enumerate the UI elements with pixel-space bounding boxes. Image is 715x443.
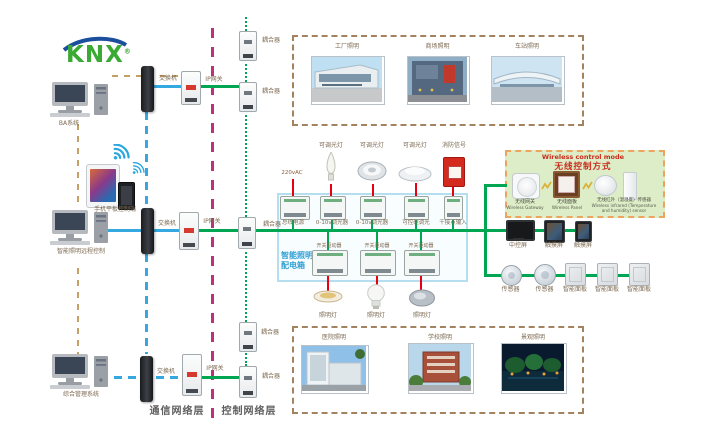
touch-screen-1-label: 触摸屏 xyxy=(540,243,568,250)
dry-contact-label: 干接点输入 xyxy=(436,220,470,226)
coupler-bus-seg1 xyxy=(245,17,247,31)
knx-logo-text: KNX® xyxy=(66,42,132,68)
wireless-panel-label: 无线面板 Wireless Panel xyxy=(547,199,587,210)
coupler-5 xyxy=(239,366,257,398)
distribution-box-title-line1: 智能照明 xyxy=(281,251,313,260)
wireless-title-zh: 无线控制方式 xyxy=(505,160,661,172)
sensor-2-label: 传感器 xyxy=(531,287,558,294)
tablet-icon xyxy=(86,164,120,208)
knx-trunk-vertical xyxy=(484,184,487,277)
mobile-tablet-group xyxy=(78,144,150,208)
power-label: 220vAC xyxy=(276,170,308,176)
mall-photo xyxy=(407,56,470,105)
ba-computer-label: BA系统 xyxy=(38,121,100,128)
wireless-panel-icon xyxy=(553,171,580,198)
downlight-icon xyxy=(357,159,387,183)
actuator-1-label: 开关驱动器 xyxy=(312,244,346,250)
switch-3-label: 交换机 xyxy=(153,369,179,376)
coupler-2 xyxy=(239,82,257,112)
wireless-branch-line xyxy=(484,184,507,187)
ip-gateway-2 xyxy=(179,212,199,250)
coupler-4-label: 耦合器 xyxy=(256,330,284,337)
school-scene-label: 学校照明 xyxy=(416,335,464,342)
central-screen-label: 中控屏 xyxy=(503,243,533,250)
actuator-3-label: 开关驱动器 xyxy=(404,244,438,250)
switch-2 xyxy=(141,208,154,254)
bulb-lamp-icon xyxy=(367,284,385,310)
ceiling-lamp-icon xyxy=(398,162,432,182)
station-photo xyxy=(491,56,565,105)
lamp-3-label: 照明灯 xyxy=(409,313,435,320)
comm-line-top xyxy=(150,85,182,88)
smart-panel-2-label: 智能面板 xyxy=(593,287,621,294)
wireless-panel-label-en: Wireless Panel xyxy=(547,205,587,210)
mgmt-computer-label: 综合管理系统 xyxy=(32,392,130,399)
candle-lamp-icon xyxy=(325,152,337,182)
wireless-gateway-icon xyxy=(512,173,540,199)
remote-computer-label: 智能照明远程控制 xyxy=(26,249,136,256)
dimmer-module-2 xyxy=(360,196,386,220)
dimmer-module-1 xyxy=(320,196,346,220)
ip-gateway-1 xyxy=(181,71,201,105)
comm-backbone-lower xyxy=(145,254,148,354)
coupler-1 xyxy=(239,31,257,61)
fire-signal-label: 消防信号 xyxy=(437,143,471,150)
switch-actuator-1 xyxy=(312,250,348,276)
wireless-signal-icon-1 xyxy=(541,179,552,192)
flat-lamp-icon xyxy=(313,289,343,303)
lamp-1-label: 照明灯 xyxy=(315,313,341,320)
ip-gateway-3-label: IP网关 xyxy=(201,366,229,373)
wireless-sensor-dome-icon xyxy=(594,175,617,196)
power-feed-line xyxy=(292,179,294,197)
hospital-photo xyxy=(301,345,369,394)
switch-3 xyxy=(140,356,153,402)
load-line-3 xyxy=(415,183,417,197)
coupler-5-label: 耦合器 xyxy=(257,374,285,381)
ba-computer-icon xyxy=(50,82,112,120)
smart-panel-2-icon xyxy=(597,263,618,286)
switch-actuator-2 xyxy=(360,250,396,276)
wireless-sensor-label: 无线红外（温湿度）传感器 Wireless infrared (Temperat… xyxy=(590,198,658,213)
dimmer-1-label: 0-10v调光器 xyxy=(311,220,353,226)
ip-gateway-3 xyxy=(182,354,202,396)
smart-panel-3-label: 智能面板 xyxy=(625,287,653,294)
switch-1-label: 交换机 xyxy=(155,76,181,83)
registered-mark: ® xyxy=(124,47,132,55)
factory-photo xyxy=(311,56,385,105)
smart-panel-1-icon xyxy=(565,263,586,286)
smart-panel-3-icon xyxy=(629,263,650,286)
coupler-bus-seg4 xyxy=(245,247,247,322)
scr-dimmer-label: 可控硅调光 xyxy=(398,220,434,226)
mall-scene-label: 商场照明 xyxy=(410,44,465,51)
dry-contact-module xyxy=(444,196,463,220)
factory-scene-label: 工厂照明 xyxy=(321,44,373,51)
dimmer-2-label: 0-10v调光器 xyxy=(351,220,393,226)
dim-lamp-2-label: 可调光灯 xyxy=(356,143,388,150)
coupler-1-label: 耦合器 xyxy=(257,38,285,45)
coupler-bus-seg5 xyxy=(245,350,247,366)
coupler-bus-seg2 xyxy=(245,59,247,82)
control-layer-label: 控制网络层 xyxy=(220,402,278,417)
actuator-2-label: 开关驱动器 xyxy=(360,244,394,250)
coupler-3 xyxy=(238,217,256,249)
central-screen-stand xyxy=(513,238,524,240)
bus-power-label: 总线电源 xyxy=(278,220,308,226)
dim-lamp-3-label: 可调光灯 xyxy=(399,143,431,150)
scr-dimmer-module xyxy=(404,196,429,220)
comm-layer-label: 通信网络层 xyxy=(148,402,206,417)
hospital-scene-label: 医院照明 xyxy=(308,335,360,342)
fire-alarm-icon xyxy=(443,157,465,187)
switch-2-label: 交换机 xyxy=(154,221,180,228)
touch-screen-2-label: 触摸屏 xyxy=(569,243,597,250)
touch-screen-2-icon xyxy=(575,221,592,242)
wireless-gateway-label: 无线网关 Wireless Gateway xyxy=(503,199,547,210)
wireless-sensor-label-en: Wireless infrared (Temperature and humid… xyxy=(590,203,658,213)
ip-gateway-1-label: IP网关 xyxy=(200,77,228,84)
smart-panel-1-label: 智能面板 xyxy=(561,287,589,294)
mgmt-computer-icon xyxy=(50,354,112,392)
knx-line-bottom xyxy=(200,376,240,379)
coupler-bus-seg3 xyxy=(245,110,247,217)
wireless-gateway-label-en: Wireless Gateway xyxy=(503,205,547,210)
terminal-link-line-2 xyxy=(77,268,79,354)
remote-computer-icon xyxy=(50,210,112,248)
switch-actuator-3 xyxy=(404,250,440,276)
sensor-1-icon xyxy=(501,265,522,286)
knx-logo: KNX® xyxy=(58,34,138,76)
distribution-box-title-line2: 配电箱 xyxy=(281,261,305,270)
touch-screen-1-icon xyxy=(544,220,565,243)
station-scene-label: 车站照明 xyxy=(496,44,558,51)
coupler-2-label: 耦合器 xyxy=(257,89,285,96)
dim-lamp-1-label: 可调光灯 xyxy=(315,143,347,150)
dish-lamp-icon xyxy=(409,288,435,308)
knx-lighting-architecture-diagram: KNX® BA系统 手机平板控制端 智能照明远程控制 xyxy=(0,0,715,443)
landscape-scene-label: 景观照明 xyxy=(509,335,557,342)
wireless-sensor-body-icon xyxy=(623,172,637,200)
coupler-4 xyxy=(239,322,257,352)
school-photo xyxy=(408,343,474,394)
sensor-1-label: 传感器 xyxy=(497,287,524,294)
switch-1 xyxy=(141,66,154,112)
landscape-photo xyxy=(501,343,567,394)
lamp-2-label: 照明灯 xyxy=(363,313,389,320)
wireless-signal-icon-2 xyxy=(582,179,593,192)
sensor-2-icon xyxy=(534,264,556,286)
bus-power-module xyxy=(280,196,310,220)
knx-line-top xyxy=(199,85,240,88)
ip-gateway-2-label: IP网关 xyxy=(198,219,226,226)
